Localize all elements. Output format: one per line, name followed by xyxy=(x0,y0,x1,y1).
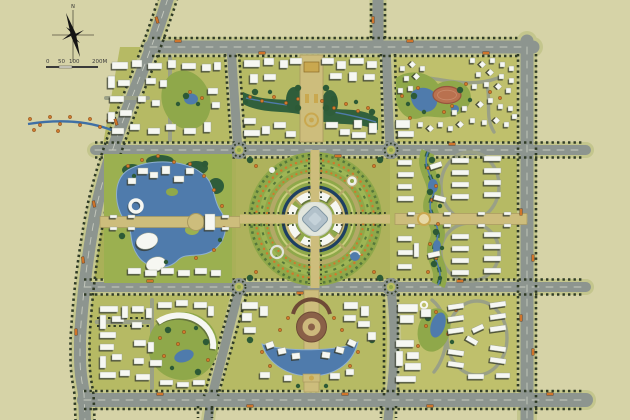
building xyxy=(161,166,170,176)
orange-tree xyxy=(428,242,431,245)
building xyxy=(397,184,412,191)
building xyxy=(360,306,369,318)
orange-tree xyxy=(408,116,411,119)
scale-segment xyxy=(59,66,72,68)
roadside-bay xyxy=(147,280,153,283)
orange-tree xyxy=(158,336,161,339)
orange-tree xyxy=(206,358,209,361)
orange-tree xyxy=(372,270,375,273)
roadside-bay xyxy=(342,393,348,396)
building xyxy=(273,122,286,130)
building xyxy=(249,74,258,85)
building xyxy=(263,58,274,67)
building xyxy=(420,309,431,319)
axis-pavilion xyxy=(304,62,319,72)
green-tree xyxy=(468,98,472,102)
roadside-bay xyxy=(75,329,78,335)
orange-tree xyxy=(188,162,191,165)
building xyxy=(99,372,116,380)
green-tree xyxy=(203,339,209,345)
green-tree xyxy=(377,275,383,281)
green-tree xyxy=(323,85,329,91)
green-tree xyxy=(202,161,208,167)
roadside-bay xyxy=(335,155,341,158)
orange-tree xyxy=(220,204,223,207)
orange-tree xyxy=(498,96,501,99)
building xyxy=(283,375,292,383)
building xyxy=(243,130,260,138)
building xyxy=(203,122,211,134)
scale-segment xyxy=(46,66,59,68)
roadside-bay xyxy=(483,52,489,55)
building xyxy=(451,246,469,253)
orange-tree xyxy=(442,110,445,113)
building xyxy=(483,180,501,187)
building xyxy=(368,123,377,135)
building xyxy=(145,78,156,86)
building xyxy=(137,96,146,104)
roadside-bay xyxy=(547,393,553,396)
building xyxy=(185,168,194,176)
building xyxy=(147,128,160,136)
orange-tree xyxy=(126,164,129,167)
building xyxy=(345,369,354,377)
green-tree xyxy=(170,366,174,370)
building xyxy=(397,172,414,179)
green-tree xyxy=(247,157,253,163)
building xyxy=(483,156,501,163)
building xyxy=(413,243,419,259)
building xyxy=(483,168,501,175)
building xyxy=(111,128,124,136)
green-tree xyxy=(176,102,180,106)
orange-tree xyxy=(340,328,343,331)
green-tree xyxy=(196,102,200,106)
orange-tree xyxy=(450,104,453,107)
bottom-left-block xyxy=(148,312,218,380)
building xyxy=(157,302,172,310)
building xyxy=(495,373,510,380)
building xyxy=(343,315,356,323)
building xyxy=(261,126,270,136)
green-tree xyxy=(369,109,375,115)
roadside-bay xyxy=(259,52,265,55)
orange-tree xyxy=(488,90,491,93)
building xyxy=(151,100,160,108)
green-tree xyxy=(429,157,435,163)
building xyxy=(451,158,469,165)
building xyxy=(395,120,410,130)
orange-tree xyxy=(68,115,71,118)
green-tree xyxy=(427,189,433,195)
building xyxy=(99,356,106,370)
orange-tree xyxy=(434,184,437,187)
building xyxy=(279,60,288,70)
roadside-bay xyxy=(407,40,413,43)
scale-label-200: 200M xyxy=(92,59,107,65)
scale-label-100: 100 xyxy=(69,59,80,65)
building xyxy=(363,74,375,82)
green-tree xyxy=(450,340,454,344)
building xyxy=(127,268,141,276)
building xyxy=(451,258,469,265)
green-tree xyxy=(132,174,136,178)
building xyxy=(397,236,412,243)
roadside-bay xyxy=(372,17,375,23)
scale-segment xyxy=(72,66,98,68)
building xyxy=(336,61,346,71)
orange-tree xyxy=(260,99,263,102)
building xyxy=(243,60,260,69)
roadside-bay xyxy=(532,349,535,355)
building xyxy=(183,128,196,136)
building xyxy=(129,124,140,132)
building xyxy=(397,250,414,257)
orange-tree xyxy=(434,310,437,313)
building xyxy=(211,102,220,110)
building xyxy=(451,182,469,189)
building xyxy=(395,340,414,349)
building xyxy=(99,332,116,340)
building xyxy=(397,304,418,314)
roadside-bay xyxy=(81,257,84,264)
building xyxy=(167,60,176,70)
building xyxy=(285,131,296,139)
building xyxy=(173,176,184,184)
orange-tree xyxy=(58,122,61,125)
orange-tree xyxy=(436,222,439,225)
building xyxy=(145,308,152,320)
building xyxy=(119,370,130,378)
building xyxy=(406,352,419,361)
orange-tree xyxy=(176,342,179,345)
building xyxy=(111,62,128,71)
green-tree xyxy=(194,326,198,330)
building xyxy=(451,234,469,241)
building xyxy=(131,306,144,314)
green-tree xyxy=(422,110,426,114)
roadside-bay xyxy=(449,143,455,146)
axis-roundel xyxy=(418,213,430,225)
green-tree xyxy=(457,87,463,93)
building xyxy=(329,373,340,381)
building xyxy=(99,306,118,314)
building xyxy=(131,60,142,69)
orange-tree xyxy=(188,90,191,93)
building xyxy=(483,244,501,251)
building xyxy=(397,196,414,203)
orange-tree xyxy=(254,270,257,273)
green-tree xyxy=(354,100,358,104)
west-axis xyxy=(100,217,240,228)
orange-tree xyxy=(366,106,369,109)
building xyxy=(397,131,414,139)
building xyxy=(243,327,256,335)
green-tree xyxy=(195,369,201,375)
building xyxy=(147,342,154,354)
building xyxy=(366,61,377,70)
orange-tree xyxy=(212,188,215,191)
orange-tree xyxy=(212,248,215,251)
building xyxy=(483,268,501,275)
green-tree xyxy=(119,233,125,239)
building xyxy=(243,118,256,126)
scale-label-0: 0 xyxy=(46,59,50,65)
building xyxy=(137,168,148,176)
building xyxy=(241,302,258,311)
green-tree xyxy=(218,238,222,242)
green-tree xyxy=(323,105,329,111)
building xyxy=(210,270,221,278)
building xyxy=(290,353,300,361)
building xyxy=(181,63,196,71)
orange-tree xyxy=(426,270,429,273)
roadside-bay xyxy=(520,209,523,215)
orange-tree xyxy=(254,164,257,167)
green-tree xyxy=(295,105,301,111)
building xyxy=(357,321,370,329)
road-between-top-blocks-east xyxy=(386,47,390,150)
orange-tree xyxy=(344,102,347,105)
orange-tree xyxy=(32,128,35,131)
orange-tree xyxy=(202,174,205,177)
building xyxy=(353,120,362,130)
building xyxy=(483,192,501,199)
orange-tree xyxy=(400,94,403,97)
orange-tree xyxy=(332,106,335,109)
building xyxy=(263,74,276,82)
building xyxy=(321,58,334,66)
orange-tree xyxy=(286,316,289,319)
orange-tree xyxy=(248,95,251,98)
green-tree xyxy=(165,327,171,333)
roadside-bay xyxy=(297,292,303,295)
masterplan-page: N 0 50 100 200M xyxy=(0,0,630,420)
building xyxy=(397,160,412,167)
roadside-bay xyxy=(457,280,463,283)
building xyxy=(121,306,128,320)
orange-tree xyxy=(416,344,419,347)
green-tree xyxy=(295,85,301,91)
building xyxy=(325,122,338,130)
green-tree xyxy=(431,261,437,267)
orange-tree xyxy=(194,256,197,259)
building xyxy=(160,268,174,276)
green-tree xyxy=(324,384,328,388)
green-tree xyxy=(247,275,253,281)
building xyxy=(451,194,469,201)
orange-tree xyxy=(416,86,419,89)
orange-tree xyxy=(162,354,165,357)
roundabout xyxy=(230,141,248,159)
building xyxy=(207,306,214,318)
orange-tree xyxy=(278,328,281,331)
building xyxy=(289,58,302,66)
building xyxy=(201,64,211,73)
orange-tree xyxy=(28,117,31,120)
building xyxy=(351,132,366,140)
orange-tree xyxy=(172,160,175,163)
roadside-bay xyxy=(532,255,535,261)
orange-tree xyxy=(260,350,263,353)
green-tree xyxy=(164,260,168,264)
orange-tree xyxy=(140,158,143,161)
roadside-bay xyxy=(427,405,433,408)
orange-tree xyxy=(56,129,59,132)
green-tree xyxy=(244,100,248,104)
green-tree xyxy=(438,276,442,280)
building xyxy=(399,315,414,325)
roundabout xyxy=(382,278,400,296)
building xyxy=(451,170,469,177)
orange-tree xyxy=(372,164,375,167)
building xyxy=(147,63,162,71)
masterplan-map: N 0 50 100 200M xyxy=(0,0,630,420)
green-tree xyxy=(331,96,337,102)
building xyxy=(193,302,207,310)
building xyxy=(192,380,205,387)
building xyxy=(397,264,412,271)
orange-tree xyxy=(320,99,323,102)
orange-tree xyxy=(356,350,359,353)
building xyxy=(159,380,173,387)
building xyxy=(207,88,218,96)
building xyxy=(483,256,501,263)
building xyxy=(483,232,501,239)
orange-tree xyxy=(284,101,287,104)
building xyxy=(149,172,158,180)
building xyxy=(395,376,416,384)
green-tree xyxy=(268,90,272,94)
building xyxy=(404,363,421,372)
roadside-bay xyxy=(247,405,253,408)
building xyxy=(259,372,270,380)
building xyxy=(451,270,469,277)
green-tree xyxy=(296,384,300,388)
building xyxy=(467,374,484,381)
building xyxy=(176,382,189,389)
orange-tree xyxy=(200,96,203,99)
compass-label: N xyxy=(71,4,75,10)
building xyxy=(111,354,122,362)
building xyxy=(213,62,221,72)
orange-tree xyxy=(268,364,271,367)
building xyxy=(343,302,358,311)
roundabout xyxy=(230,278,248,296)
orange-tree xyxy=(98,125,101,128)
building xyxy=(194,268,207,276)
building xyxy=(149,360,162,368)
building xyxy=(127,178,136,186)
orange-tree xyxy=(182,330,185,333)
orange-tree xyxy=(88,117,91,120)
orange-tree xyxy=(48,115,51,118)
building xyxy=(135,374,150,382)
building xyxy=(259,306,268,318)
green-tree xyxy=(377,157,383,163)
building xyxy=(133,358,144,366)
building xyxy=(204,214,215,232)
green-tree xyxy=(247,337,253,343)
roadside-bay xyxy=(175,40,181,43)
green-tree xyxy=(436,174,440,178)
green-tree xyxy=(406,102,410,106)
orange-tree xyxy=(38,123,41,126)
building xyxy=(133,340,146,348)
building xyxy=(117,80,130,88)
building xyxy=(177,270,190,278)
green-tree xyxy=(252,89,258,95)
orange-tree xyxy=(424,324,427,327)
building xyxy=(165,124,176,132)
building xyxy=(339,129,350,137)
building xyxy=(109,96,124,104)
building xyxy=(99,344,114,352)
building xyxy=(175,300,188,308)
building xyxy=(107,76,115,90)
building xyxy=(349,58,364,66)
building xyxy=(99,315,106,331)
orange-tree xyxy=(272,95,275,98)
building xyxy=(395,351,403,368)
orange-tree xyxy=(156,154,159,157)
orange-tree xyxy=(356,109,359,112)
building xyxy=(329,73,342,81)
building xyxy=(131,322,142,330)
green-tree xyxy=(438,204,442,208)
green-tree xyxy=(183,93,189,99)
roadside-bay xyxy=(157,393,163,396)
scale-label-50: 50 xyxy=(58,59,65,65)
orange-tree xyxy=(332,316,335,319)
roundabout xyxy=(382,141,400,159)
building xyxy=(119,110,132,118)
building xyxy=(367,332,376,342)
green-tree xyxy=(411,93,417,99)
orange-tree xyxy=(78,123,81,126)
roadside-bay xyxy=(520,315,523,321)
orange-tree xyxy=(348,364,351,367)
orange-tree xyxy=(464,82,467,85)
building xyxy=(348,72,357,83)
building xyxy=(107,112,115,124)
building xyxy=(241,313,252,323)
orange-tree xyxy=(296,97,299,100)
green-tree xyxy=(440,246,444,250)
green-tree xyxy=(433,229,439,235)
building xyxy=(144,270,157,278)
